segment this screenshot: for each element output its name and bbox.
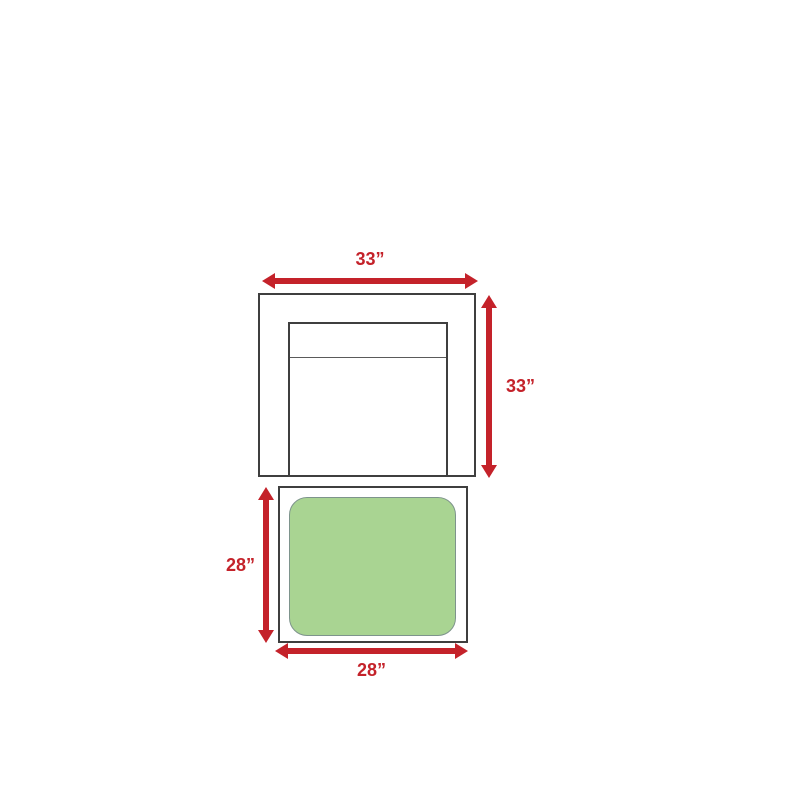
chair-seat-outline [288,322,448,477]
arrow-shaft [263,497,269,633]
arrowhead-right-icon [465,273,478,289]
ottoman-depth-label: 28” [207,555,255,575]
arrowhead-down-icon [258,630,274,643]
ottoman-width-label: 28” [275,660,468,680]
arrowhead-right-icon [455,643,468,659]
furniture-dimension-diagram: 33” 33” 28” 28” [0,0,800,800]
ottoman-width-dimension-arrow [275,643,468,659]
chair-seat-seam-line [290,357,446,358]
chair-depth-dimension-arrow [481,295,497,478]
arrow-shaft [285,648,458,654]
ottoman-cushion [289,497,456,636]
chair-width-label: 33” [262,249,478,269]
chair-depth-label: 33” [506,376,554,396]
arrowhead-down-icon [481,465,497,478]
chair-width-dimension-arrow [262,273,478,289]
ottoman-depth-dimension-arrow [258,487,274,643]
arrow-shaft [486,305,492,468]
arrow-shaft [272,278,468,284]
